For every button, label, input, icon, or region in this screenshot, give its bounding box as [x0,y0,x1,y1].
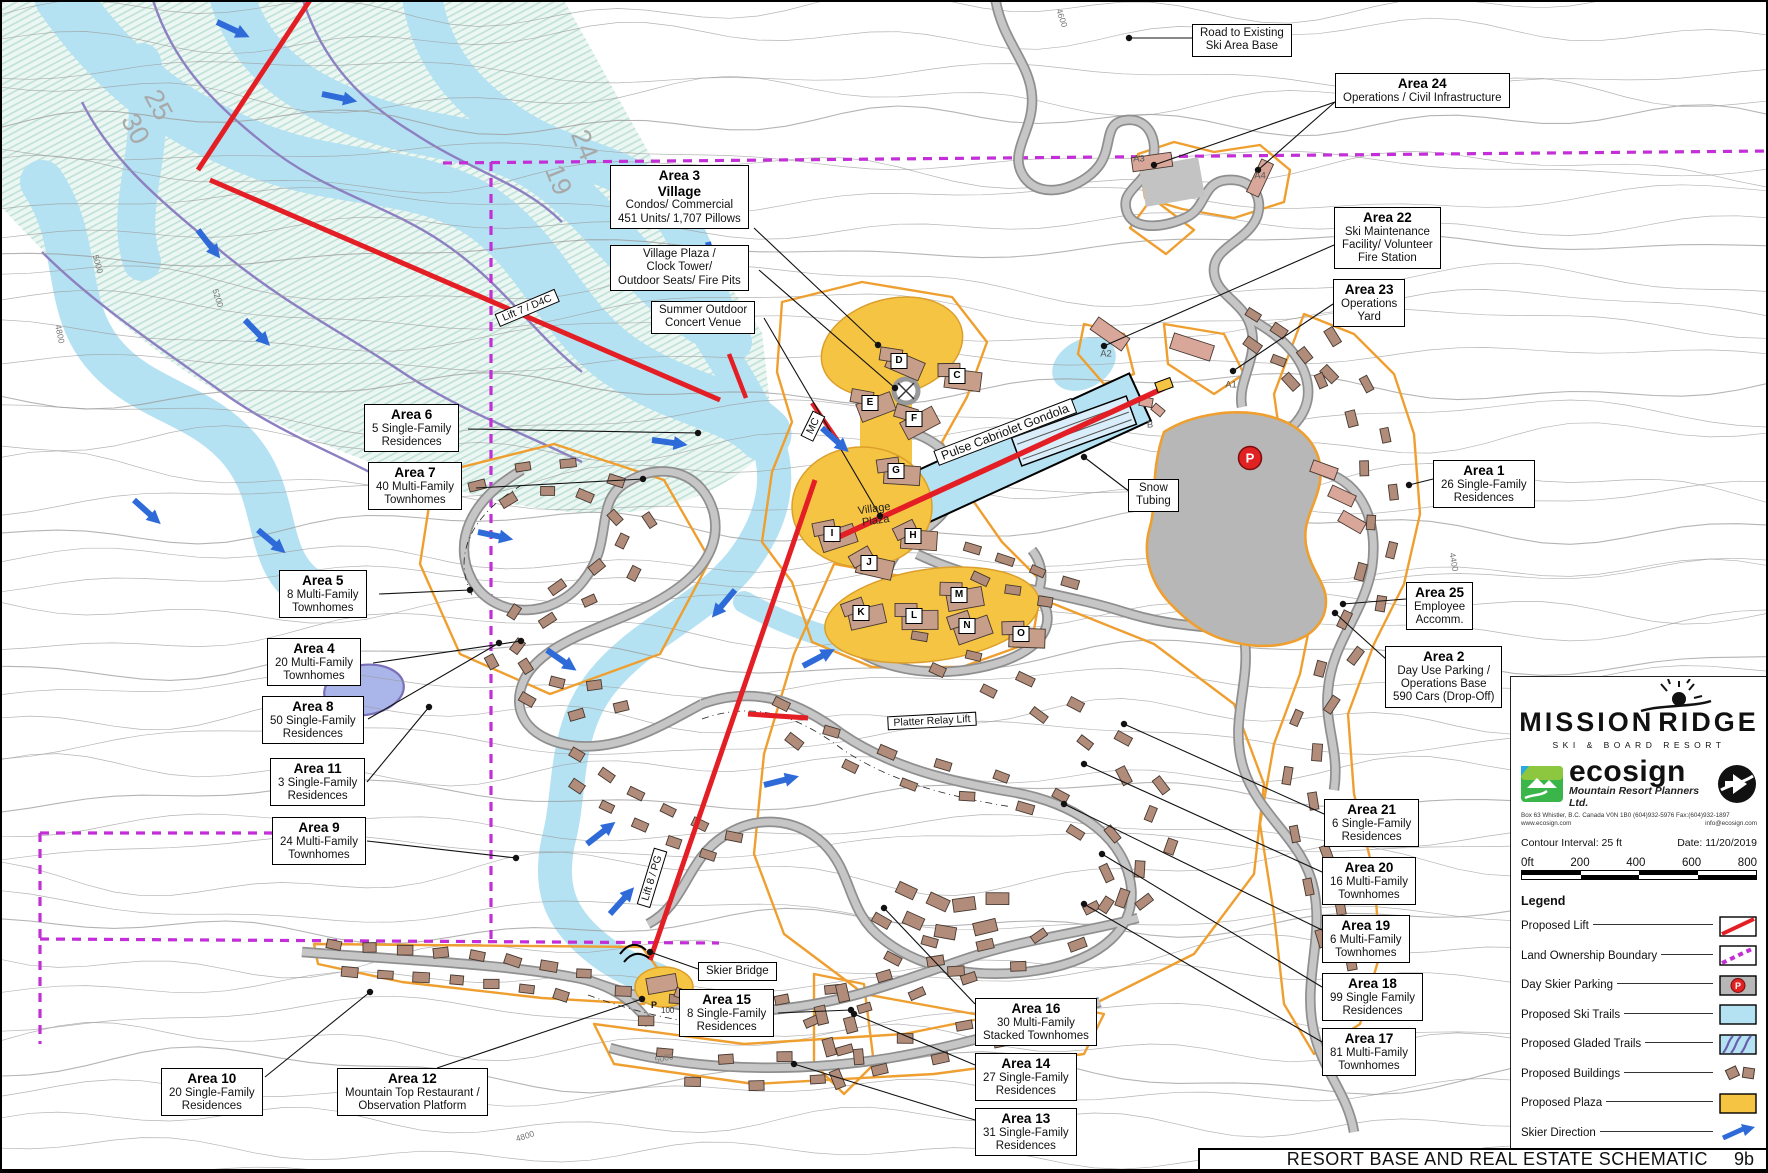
skier-direction-swatch-icon [1719,1122,1757,1143]
callout-line: Snow [1136,482,1171,495]
callout-line: Area 13 [983,1111,1069,1127]
parcel-letter: B [1147,420,1153,431]
callout-summer-venue: Summer OutdoorConcert Venue [651,301,755,334]
village-plaza-label: VillagePlaza [857,501,893,530]
legend-label: Proposed Lift [1521,920,1589,932]
callout-line: Accomm. [1414,614,1465,627]
callout-line: 451 Units/ 1,707 Pillows [618,213,741,226]
callout-line: 20 Multi-Family [275,657,353,670]
callout-area-17: Area 1781 Multi-FamilyTownhomes [1322,1028,1416,1076]
resort-subtitle: SKI & BOARD RESORT [1521,740,1757,750]
scale-tick: 200 [1570,857,1589,869]
callout-line: Observation Platform [345,1100,480,1113]
callout-line: Townhomes [1330,1060,1408,1073]
callout-line: Area 11 [278,761,357,777]
planner-address-line1: Box 63 Whistler, B.C. Canada V0N 1B0 (60… [1521,812,1757,820]
legend-leader-line [1624,1072,1713,1073]
callout-line: 16 Multi-Family [1330,876,1408,889]
callout-line: Road to Existing [1200,27,1284,40]
callout-line: Residences [1330,1005,1415,1018]
callout-line: Residences [983,1085,1069,1098]
callout-line: Day Use Parking / [1393,665,1494,678]
callout-line: Clock Tower/ [618,261,741,274]
ski-trails-swatch-icon [1719,1004,1757,1025]
map-overlays: Road to ExistingSki Area BaseArea 24Oper… [2,2,1766,1171]
callout-line: Skier Bridge [706,965,769,978]
scale-tick: 400 [1626,857,1645,869]
callout-line: Area 17 [1330,1031,1408,1047]
scale-bar-segment [1698,875,1757,879]
legend-leader-line [1661,954,1713,955]
sheet-number: 9b [1734,1149,1754,1170]
callout-area-5: Area 58 Multi-FamilyTownhomes [279,570,367,618]
callout-area-11: Area 113 Single-FamilyResidences [270,758,365,806]
callout-line: 6 Multi-Family [1330,934,1402,947]
contour-interval-note: Contour Interval: 25 ft [1521,837,1622,849]
buildings-swatch-icon [1719,1063,1757,1084]
svg-text:P: P [1735,981,1741,991]
mountain-parking-capacity: 100 [661,1006,674,1015]
scale-bar-segment [1639,875,1698,879]
village-building-letter: F [906,411,923,427]
callout-line: 31 Single-Family [983,1127,1069,1140]
callout-line: 20 Single-Family [169,1087,255,1100]
village-building-letter: N [959,618,976,634]
sheet-title-bar: RESORT BASE AND REAL ESTATE SCHEMATIC 9b [1198,1148,1768,1169]
scale-bar-segment [1522,875,1581,879]
callout-line: Mountain Top Restaurant / [345,1087,480,1100]
contour-elevation-label: 5000 [91,254,106,275]
callout-area-23: Area 23OperationsYard [1333,279,1405,327]
planner-website: www.ecosign.com [1521,820,1571,828]
village-building-letter: C [949,368,966,384]
lift-swatch-icon [1719,916,1757,937]
callout-line: Area 3 [618,168,741,184]
callout-line: Residences [169,1100,255,1113]
callout-line: Townhomes [287,602,359,615]
legend-label: Proposed Plaza [1521,1097,1602,1109]
callout-line: Village Plaza / [618,248,741,261]
legend-leader-line [1645,1042,1713,1043]
legend-label: Proposed Gladed Trails [1521,1038,1641,1050]
callout-line: Summer Outdoor [659,304,747,317]
ecosign-arrow-icon [1717,764,1757,804]
scale-bar-segment [1581,875,1640,879]
callout-line: 8 Multi-Family [287,589,359,602]
contour-elevation-label: 4600 [1054,7,1069,28]
callout-line: Tubing [1136,495,1171,508]
callout-area-24: Area 24Operations / Civil Infrastructure [1335,73,1510,108]
callout-area-10: Area 1020 Single-FamilyResidences [161,1068,263,1116]
callout-line: Townhomes [1330,947,1402,960]
callout-line: 30 Multi-Family [983,1017,1089,1030]
callout-line: 3 Single-Family [278,777,357,790]
lift-label-pulse-gondola: Pulse Cabriolet Gondola [933,398,1076,466]
callout-line: Employee [1414,601,1465,614]
callout-line: 27 Single-Family [983,1072,1069,1085]
callout-line: Area 14 [983,1056,1069,1072]
callout-line: 26 Single-Family [1441,479,1527,492]
callout-line: 6 Single-Family [1332,818,1411,831]
contour-elevation-label: 5000 [654,1051,675,1065]
callout-line: Area 15 [687,992,766,1008]
callout-line: Area 1 [1441,463,1527,479]
parking-p-text: P [1246,451,1255,466]
legend-label: Proposed Buildings [1521,1068,1620,1080]
planner-subtitle: Mountain Resort Planners Ltd. [1569,785,1711,809]
callout-line: Area 22 [1342,210,1433,226]
contour-elevation-label: 4400 [1447,552,1460,572]
village-building-letter: D [891,353,908,369]
callout-line: Stacked Townhomes [983,1030,1089,1043]
legend-item-lift: Proposed Lift [1521,915,1757,937]
callout-line: Operations / Civil Infrastructure [1343,92,1502,105]
callout-line: 81 Multi-Family [1330,1047,1408,1060]
callout-line: Operations [1341,298,1397,311]
callout-line: Area 4 [275,641,353,657]
legend-leader-line [1617,983,1713,984]
legend-leader-line [1624,1013,1713,1014]
callout-line: Area 8 [270,699,356,715]
callout-line: Ski Maintenance [1342,226,1433,239]
legend-heading: Legend [1521,894,1757,908]
ecosign-logo-icon [1521,766,1563,802]
callout-area-16: Area 1630 Multi-FamilyStacked Townhomes [975,998,1097,1046]
callout-line: 8 Single-Family [687,1008,766,1021]
village-building-letter: H [905,528,922,544]
plaza-swatch-icon [1719,1093,1757,1114]
parcel-letter: A1 [1225,380,1237,391]
callout-line: Condos/ Commercial [618,199,741,212]
callout-area-18: Area 1899 Single FamilyResidences [1322,973,1423,1021]
boundary-swatch-icon [1719,945,1757,966]
resort-master-plan-map: Road to ExistingSki Area BaseArea 24Oper… [0,0,1768,1173]
callout-line: Outdoor Seats/ Fire Pits [618,275,741,288]
callout-area-3: Area 3VillageCondos/ Commercial451 Units… [610,165,749,229]
callout-line: Area 6 [372,407,451,423]
scale-bar-ticks: 0ft200400600800 [1521,857,1757,869]
callout-line: 50 Single-Family [270,715,356,728]
map-info-panel: MISSION RIDGE SKI & BOARD RESORT ecosign… [1510,676,1768,1149]
legend-item-skier-direction: Skier Direction [1521,1122,1757,1144]
callout-snow-tubing: SnowTubing [1128,479,1179,512]
callout-area-20: Area 2016 Multi-FamilyTownhomes [1322,857,1416,905]
lift-label-lift-8-pg: Lift 8 / PG [637,848,668,908]
callout-line: Residences [372,436,451,449]
callout-line: Area 5 [287,573,359,589]
callout-line: Townhomes [376,494,454,507]
callout-skier-bridge: Skier Bridge [698,962,777,981]
callout-area-2: Area 2Day Use Parking /Operations Base59… [1385,646,1502,708]
callout-line: Area 16 [983,1001,1089,1017]
planner-logo-row: ecosign Mountain Resort Planners Ltd. [1521,758,1757,809]
callout-line: Townhomes [275,670,353,683]
callout-area-15: Area 158 Single-FamilyResidences [679,989,774,1037]
callout-line: Area 18 [1330,976,1415,992]
trail-number: 24 [564,125,604,164]
callout-line: 24 Multi-Family [280,836,358,849]
callout-line: Ski Area Base [1200,40,1284,53]
callout-area-1: Area 126 Single-FamilyResidences [1433,460,1535,508]
callout-line: Operations Base [1393,678,1494,691]
callout-line: Area 21 [1332,802,1411,818]
callout-line: Village [618,184,741,200]
callout-line: Townhomes [280,849,358,862]
lift-label-lift-7-d4c: Lift 7 / D4C [495,289,560,327]
callout-line: Residences [687,1021,766,1034]
trail-number: 19 [538,160,578,199]
callout-line: Area 24 [1343,76,1502,92]
callout-line: Area 12 [345,1071,480,1087]
parcel-letter: A2 [1100,349,1112,360]
callout-line: Yard [1341,311,1397,324]
callout-line: Facility/ Volunteer [1342,239,1433,252]
callout-line: 5 Single-Family [372,423,451,436]
callout-area-9: Area 924 Multi-FamilyTownhomes [272,817,366,865]
legend-item-parking: Day Skier ParkingP [1521,974,1757,996]
callout-area-14: Area 1427 Single-FamilyResidences [975,1053,1077,1101]
callout-area-4: Area 420 Multi-FamilyTownhomes [267,638,361,686]
legend-label: Proposed Ski Trails [1521,1009,1620,1021]
parcel-letter: A4 [1254,171,1266,182]
callout-line: Fire Station [1342,252,1433,265]
callout-area-21: Area 216 Single-FamilyResidences [1324,799,1419,847]
callout-village-plaza-note: Village Plaza /Clock Tower/Outdoor Seats… [610,245,749,291]
legend-label: Day Skier Parking [1521,979,1613,991]
date-note: Date: 11/20/2019 [1677,837,1757,849]
lift-label-platter-relay: Platter Relay Lift [887,712,977,731]
legend-item-plaza: Proposed Plaza [1521,1092,1757,1114]
scale-tick: 0ft [1521,857,1534,869]
village-building-letter: K [853,605,870,621]
callout-line: 40 Multi-Family [376,481,454,494]
legend-item-ski-trails: Proposed Ski Trails [1521,1004,1757,1026]
callout-line: 590 Cars (Drop-Off) [1393,691,1494,704]
callout-area-7: Area 740 Multi-FamilyTownhomes [368,462,462,510]
village-building-letter: E [862,395,879,411]
callout-line: Townhomes [1330,889,1408,902]
callout-line: Area 20 [1330,860,1408,876]
callout-road-to-base: Road to ExistingSki Area Base [1192,24,1292,57]
callout-line: Residences [983,1140,1069,1153]
planner-name: ecosign [1569,758,1711,785]
scale-tick: 800 [1738,857,1757,869]
gladed-trails-swatch-icon [1719,1034,1757,1055]
callout-area-13: Area 1331 Single-FamilyResidences [975,1108,1077,1156]
callout-line: Area 10 [169,1071,255,1087]
planner-email: info@ecosign.com [1705,820,1757,828]
legend-item-boundary: Land Ownership Boundary [1521,945,1757,967]
village-building-letter: O [1013,626,1030,642]
village-building-letter: J [861,555,878,571]
legend-leader-line [1606,1101,1713,1102]
callout-line: Residences [1441,492,1527,505]
callout-line: Area 25 [1414,585,1465,601]
callout-area-8: Area 850 Single-FamilyResidences [262,696,364,744]
resort-name-left: MISSION [1519,707,1654,738]
callout-area-6: Area 65 Single-FamilyResidences [364,404,459,452]
callout-line: Area 7 [376,465,454,481]
contour-elevation-label: 5200 [210,287,225,308]
legend-item-gladed-trails: Proposed Gladed Trails [1521,1033,1757,1055]
village-building-letter: L [906,608,923,624]
callout-area-22: Area 22Ski MaintenanceFacility/ Voluntee… [1334,207,1441,269]
planner-address: Box 63 Whistler, B.C. Canada V0N 1B0 (60… [1521,812,1757,828]
legend: Proposed LiftLand Ownership BoundaryDay … [1521,915,1757,1144]
contour-elevation-label: 4800 [514,1128,535,1143]
parking-swatch-icon: P [1719,975,1757,996]
contour-elevation-label: 4800 [53,324,67,345]
legend-item-buildings: Proposed Buildings [1521,1063,1757,1085]
callout-line: Residences [1332,831,1411,844]
callout-area-12: Area 12Mountain Top Restaurant /Observat… [337,1068,488,1116]
callout-line: Residences [278,790,357,803]
callout-line: 99 Single Family [1330,992,1415,1005]
callout-line: Area 9 [280,820,358,836]
callout-area-25: Area 25EmployeeAccomm. [1406,582,1473,630]
legend-leader-line [1593,924,1713,925]
village-building-letter: M [951,587,968,603]
legend-label: Land Ownership Boundary [1521,950,1657,962]
parcel-letter: A3 [1133,154,1145,165]
scale-tick: 600 [1682,857,1701,869]
callout-line: Residences [270,728,356,741]
scale-bar [1521,870,1757,880]
callout-line: Area 23 [1341,282,1397,298]
village-building-letter: I [824,526,841,542]
legend-leader-line [1600,1131,1713,1132]
mountain-parking-p: P [651,1000,657,1010]
callout-area-19: Area 196 Multi-FamilyTownhomes [1322,915,1410,963]
bottom-border-bar [2,1169,1766,1173]
callout-line: Concert Venue [659,317,747,330]
callout-line: Area 2 [1393,649,1494,665]
legend-label: Skier Direction [1521,1127,1596,1139]
callout-line: Area 19 [1330,918,1402,934]
mission-ridge-sun-logo [1639,679,1713,713]
lift-label-mc: MC [800,410,825,442]
village-building-letter: G [888,463,905,479]
sheet-title: RESORT BASE AND REAL ESTATE SCHEMATIC [1287,1149,1708,1170]
